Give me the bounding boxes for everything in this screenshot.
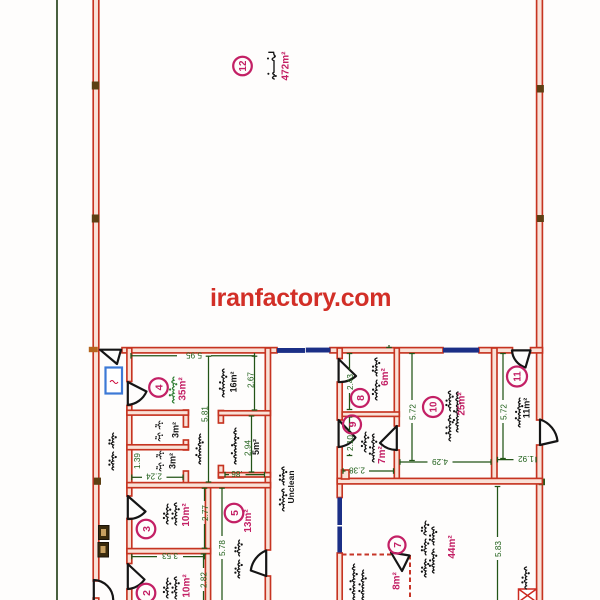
svg-text:11: 11 [513, 371, 524, 382]
svg-text:25m²: 25m² [457, 392, 468, 416]
svg-text:5.95: 5.95 [186, 351, 202, 360]
svg-text:7: 7 [392, 542, 404, 548]
svg-text:1.92: 1.92 [518, 454, 534, 463]
svg-text:44m²: 44m² [447, 535, 458, 559]
svg-text:3m²: 3m² [168, 453, 178, 469]
svg-text:2: 2 [141, 590, 153, 596]
svg-text:8m²: 8m² [392, 571, 403, 589]
svg-text:9: 9 [347, 421, 359, 427]
svg-text:5.78: 5.78 [218, 540, 227, 556]
svg-text:5m²: 5m² [251, 439, 261, 455]
svg-text:3m²: 3m² [171, 422, 181, 438]
svg-text:2.77: 2.77 [201, 505, 210, 521]
svg-text:5.81: 5.81 [201, 406, 210, 422]
svg-text:2.24: 2.24 [146, 472, 162, 481]
svg-text:1.39: 1.39 [133, 453, 142, 469]
svg-text:8: 8 [355, 395, 367, 401]
svg-text:4: 4 [153, 384, 165, 390]
svg-text:5.72: 5.72 [499, 404, 508, 420]
svg-text:7m²: 7m² [377, 445, 388, 463]
svg-text:3: 3 [141, 526, 153, 532]
svg-text:.86: .86 [231, 469, 243, 478]
svg-text:3.53: 3.53 [162, 551, 178, 560]
svg-text:Unclean: Unclean [286, 470, 296, 503]
svg-text:iranfactory.com: iranfactory.com [210, 284, 391, 312]
svg-text:2.10: 2.10 [346, 435, 355, 451]
svg-text:5.72: 5.72 [408, 404, 417, 420]
svg-text:5.83: 5.83 [494, 541, 503, 557]
svg-text:13m²: 13m² [243, 509, 254, 533]
svg-text:16m²: 16m² [229, 371, 239, 392]
svg-text:4.29: 4.29 [432, 457, 448, 466]
svg-text:35m²: 35m² [178, 377, 189, 401]
svg-text:2.38: 2.38 [349, 466, 365, 475]
svg-text:12: 12 [238, 60, 249, 71]
svg-text:11m²: 11m² [522, 398, 532, 419]
svg-text:6m²: 6m² [380, 367, 391, 385]
svg-text:2.43: 2.43 [346, 374, 355, 390]
svg-text:10m²: 10m² [182, 574, 193, 598]
svg-text:2.67: 2.67 [247, 372, 256, 388]
svg-text:5: 5 [229, 510, 241, 516]
svg-text:472m²: 472m² [281, 51, 292, 81]
svg-text:2.82: 2.82 [200, 572, 209, 588]
svg-text:10: 10 [429, 401, 440, 412]
svg-text:10m²: 10m² [181, 503, 192, 527]
